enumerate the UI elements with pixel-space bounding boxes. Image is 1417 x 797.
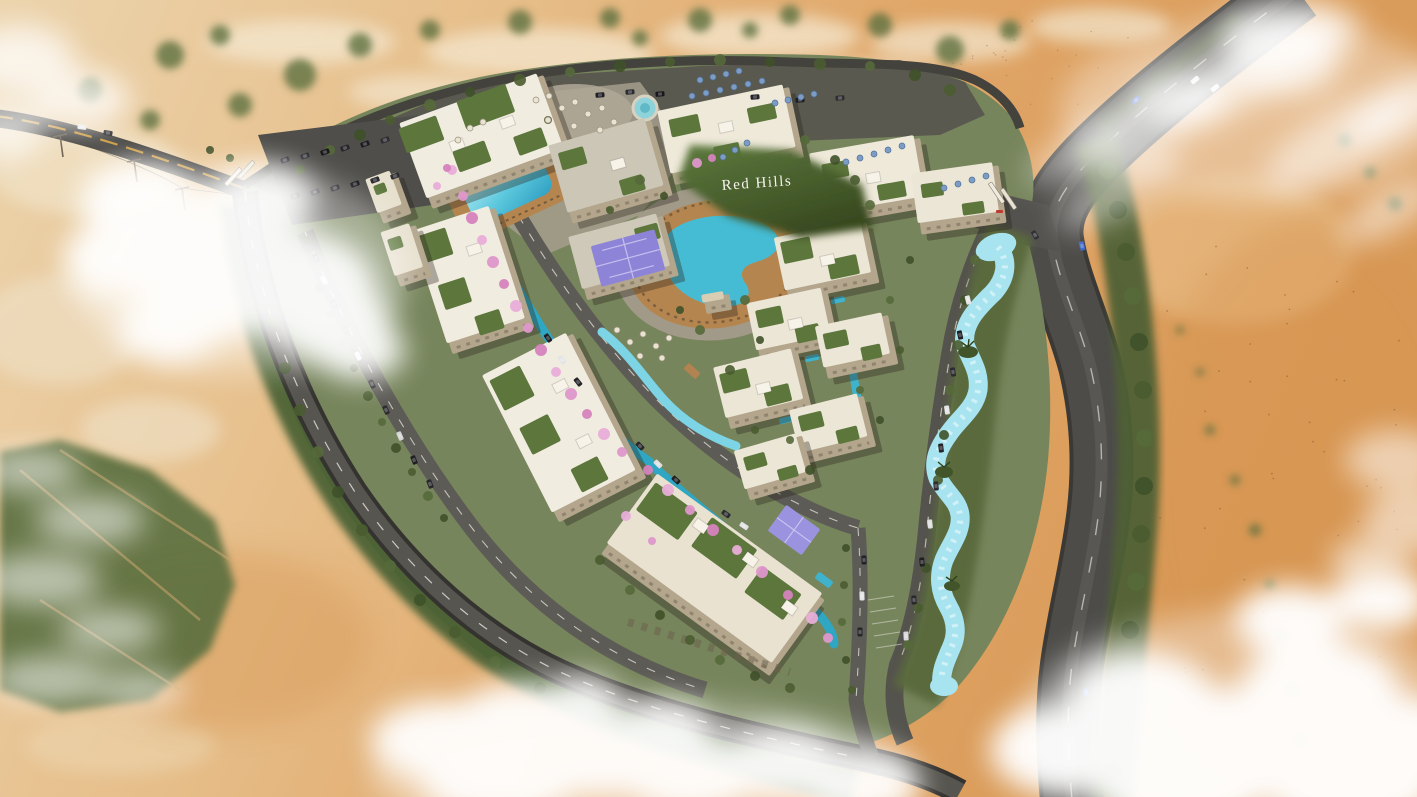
sand-speck bbox=[1366, 485, 1368, 487]
flower-tree bbox=[466, 212, 478, 224]
car bbox=[919, 557, 925, 566]
car-roof bbox=[838, 96, 842, 100]
tree bbox=[356, 524, 368, 536]
tree bbox=[714, 54, 726, 66]
sand-speck bbox=[1205, 273, 1207, 275]
building bbox=[911, 161, 1013, 242]
white-umbrella bbox=[533, 97, 539, 103]
tree bbox=[953, 340, 963, 350]
tree bbox=[865, 200, 875, 210]
car-roof bbox=[628, 90, 632, 94]
tree bbox=[625, 585, 635, 595]
tree bbox=[514, 74, 526, 86]
sand-speck bbox=[1003, 34, 1005, 36]
tree bbox=[1117, 243, 1135, 261]
tree bbox=[440, 514, 448, 522]
car-roof bbox=[598, 93, 602, 97]
blue-umbrella bbox=[969, 177, 975, 183]
sand-speck bbox=[1244, 579, 1246, 581]
tree bbox=[595, 555, 605, 565]
tree bbox=[695, 325, 705, 335]
sand-speck bbox=[995, 54, 997, 56]
sand-speck bbox=[993, 52, 995, 54]
flower-tree bbox=[756, 566, 768, 578]
sand-speck bbox=[1218, 370, 1220, 372]
tree bbox=[865, 61, 875, 71]
blue-umbrella bbox=[759, 78, 765, 84]
flower-tree bbox=[565, 388, 577, 400]
blue-umbrella bbox=[983, 173, 989, 179]
sand-speck bbox=[1166, 310, 1168, 312]
blue-umbrella bbox=[710, 74, 716, 80]
sand-speck bbox=[972, 92, 974, 94]
sand-speck bbox=[1286, 323, 1288, 325]
tree bbox=[1124, 287, 1142, 305]
tree bbox=[740, 295, 750, 305]
tree bbox=[606, 206, 614, 214]
scrub-patch bbox=[780, 5, 800, 25]
sand-speck bbox=[1249, 381, 1251, 383]
flower-tree bbox=[643, 465, 653, 475]
tree bbox=[385, 115, 395, 125]
car bbox=[927, 519, 933, 528]
scrub-patch bbox=[1196, 368, 1204, 376]
scrub-patch bbox=[420, 20, 440, 40]
flower-tree bbox=[443, 164, 451, 172]
sand-speck bbox=[1219, 508, 1221, 510]
white-umbrella bbox=[653, 343, 659, 349]
blue-umbrella bbox=[772, 100, 778, 106]
sand-speck bbox=[952, 62, 954, 64]
car bbox=[655, 91, 664, 97]
scrub-patch bbox=[1249, 524, 1261, 536]
scrub-patch bbox=[1176, 326, 1184, 334]
blue-umbrella bbox=[843, 159, 849, 165]
tree bbox=[614, 60, 626, 72]
scrub-patch bbox=[632, 30, 648, 46]
tree bbox=[1134, 381, 1152, 399]
roof-box bbox=[820, 254, 836, 267]
white-umbrella bbox=[611, 119, 617, 125]
car-roof bbox=[862, 558, 865, 562]
tree bbox=[414, 594, 426, 606]
tree bbox=[850, 175, 860, 185]
sand-speck bbox=[1020, 26, 1022, 28]
tree bbox=[665, 57, 675, 67]
car bbox=[903, 631, 908, 640]
scrub-patch bbox=[284, 59, 316, 91]
car bbox=[933, 481, 939, 490]
tree bbox=[332, 486, 344, 498]
blue-umbrella bbox=[941, 185, 947, 191]
tree bbox=[848, 686, 856, 694]
scrub-patch bbox=[210, 25, 230, 45]
white-umbrella bbox=[627, 339, 633, 345]
roof-box bbox=[866, 172, 882, 184]
tree bbox=[565, 67, 575, 77]
blue-umbrella bbox=[899, 143, 905, 149]
sand-speck bbox=[1358, 521, 1360, 523]
car-roof bbox=[945, 408, 949, 412]
sand-speck bbox=[972, 55, 974, 57]
flower-tree bbox=[617, 447, 627, 457]
tree bbox=[1136, 429, 1154, 447]
sand-speck bbox=[1215, 246, 1217, 248]
tree bbox=[814, 58, 826, 70]
white-umbrella bbox=[585, 111, 591, 117]
car bbox=[835, 95, 844, 101]
sand-speck bbox=[1271, 473, 1273, 475]
tree bbox=[423, 491, 433, 501]
sand-speck bbox=[1344, 380, 1346, 382]
tree bbox=[1130, 333, 1148, 351]
scrub-patch bbox=[600, 8, 620, 28]
tree bbox=[842, 656, 850, 664]
white-umbrella bbox=[571, 123, 577, 129]
tree bbox=[765, 57, 775, 67]
sand-speck bbox=[1395, 424, 1397, 426]
tree bbox=[685, 635, 695, 645]
tree bbox=[449, 626, 461, 638]
flower-tree bbox=[648, 537, 656, 545]
flower-tree bbox=[523, 323, 533, 333]
tree bbox=[424, 99, 436, 111]
sand-speck bbox=[961, 63, 963, 65]
sand-speck bbox=[1268, 414, 1270, 416]
car bbox=[861, 555, 866, 564]
flower-tree bbox=[598, 428, 610, 440]
scrub-patch bbox=[688, 8, 712, 32]
white-umbrella bbox=[640, 331, 646, 337]
flower-tree bbox=[510, 300, 522, 312]
sand-speck bbox=[1002, 56, 1004, 58]
car bbox=[859, 591, 864, 600]
sand-speck bbox=[1336, 379, 1338, 381]
tree bbox=[944, 84, 956, 96]
tree bbox=[676, 306, 684, 314]
sand-speck bbox=[972, 58, 974, 60]
flower-tree bbox=[806, 612, 818, 624]
sand-speck bbox=[1051, 78, 1053, 80]
tree bbox=[378, 418, 386, 426]
car-roof bbox=[912, 598, 915, 602]
flower-tree bbox=[662, 484, 674, 496]
scrub-patch bbox=[936, 36, 964, 64]
blue-umbrella bbox=[744, 140, 750, 146]
scrub-patch bbox=[508, 10, 532, 34]
car-roof bbox=[858, 630, 861, 634]
white-umbrella bbox=[614, 327, 620, 333]
tree bbox=[391, 443, 401, 453]
tree bbox=[970, 255, 980, 265]
resort-aerial-scene: Red Hills bbox=[0, 0, 1417, 797]
sand-speck bbox=[1006, 75, 1008, 77]
tree bbox=[945, 385, 955, 395]
tree bbox=[294, 404, 306, 416]
blue-umbrella bbox=[871, 151, 877, 157]
tree bbox=[312, 446, 324, 458]
sand-speck bbox=[1057, 50, 1059, 52]
tree bbox=[886, 296, 894, 304]
tree bbox=[909, 69, 921, 81]
tree bbox=[756, 336, 764, 344]
flower-tree bbox=[433, 182, 441, 190]
tree bbox=[354, 129, 366, 141]
tree bbox=[384, 560, 396, 572]
sand-speck bbox=[1005, 50, 1007, 52]
blue-umbrella bbox=[720, 154, 726, 160]
aerial-render-image: Red Hills bbox=[0, 0, 1417, 797]
tree bbox=[896, 346, 904, 354]
car-roof bbox=[904, 634, 907, 638]
blue-umbrella bbox=[885, 147, 891, 153]
white-umbrella bbox=[599, 105, 605, 111]
scrub-patch bbox=[1230, 475, 1240, 485]
tree bbox=[489, 656, 501, 668]
white-umbrella bbox=[480, 119, 486, 125]
white-umbrella bbox=[659, 355, 665, 361]
car-roof bbox=[928, 522, 932, 526]
sand-speck bbox=[1075, 54, 1077, 56]
white-umbrella bbox=[455, 137, 461, 143]
blue-umbrella bbox=[732, 147, 738, 153]
flower-tree bbox=[477, 235, 487, 245]
sand-speck bbox=[1323, 451, 1325, 453]
tree bbox=[1127, 573, 1145, 591]
flower-tree bbox=[685, 505, 695, 515]
sand-speck bbox=[1090, 31, 1092, 33]
blue-umbrella bbox=[798, 94, 804, 100]
blue-umbrella bbox=[703, 90, 709, 96]
sand-speck bbox=[1030, 104, 1032, 106]
tree bbox=[830, 155, 840, 165]
tree bbox=[785, 683, 795, 693]
car bbox=[857, 627, 862, 636]
flower-tree bbox=[487, 256, 499, 268]
tree bbox=[363, 391, 373, 401]
sand-speck bbox=[1312, 441, 1314, 443]
sand-speck bbox=[1289, 309, 1291, 311]
sand-speck bbox=[1337, 535, 1339, 537]
sand-speck bbox=[1031, 20, 1033, 22]
fountain-center bbox=[640, 103, 650, 113]
sand-speck bbox=[986, 45, 988, 47]
sand-speck bbox=[1014, 39, 1016, 41]
sand-speck bbox=[1159, 517, 1161, 519]
blue-umbrella bbox=[689, 93, 695, 99]
tree bbox=[206, 146, 214, 154]
tree bbox=[913, 603, 923, 613]
tree bbox=[715, 655, 725, 665]
white-umbrella bbox=[572, 99, 578, 105]
flower-tree bbox=[458, 191, 468, 201]
flower-tree bbox=[708, 154, 716, 162]
car-roof bbox=[860, 594, 863, 598]
tree bbox=[465, 87, 475, 97]
sand-speck bbox=[1394, 409, 1396, 411]
blue-umbrella bbox=[717, 87, 723, 93]
scrub-patch bbox=[868, 13, 892, 37]
white-umbrella bbox=[467, 125, 473, 131]
tree bbox=[751, 426, 759, 434]
sand-speck bbox=[1249, 343, 1251, 345]
white-umbrella bbox=[637, 353, 643, 359]
white-umbrella bbox=[546, 93, 552, 99]
car-roof bbox=[934, 484, 938, 488]
blue-umbrella bbox=[731, 84, 737, 90]
blue-umbrella bbox=[785, 97, 791, 103]
sand-speck bbox=[1204, 411, 1206, 413]
roof-box bbox=[788, 317, 804, 330]
blue-umbrella bbox=[811, 91, 817, 97]
tree bbox=[750, 671, 760, 681]
scrub-patch bbox=[140, 110, 160, 130]
tree bbox=[842, 544, 850, 552]
sand-speck bbox=[1284, 294, 1286, 296]
tree bbox=[906, 256, 914, 264]
blue-umbrella bbox=[745, 81, 751, 87]
blue-umbrella bbox=[955, 181, 961, 187]
scrub-patch bbox=[348, 33, 372, 57]
tree bbox=[725, 365, 735, 375]
flower-tree bbox=[535, 344, 547, 356]
tree bbox=[939, 430, 949, 440]
flower-tree bbox=[551, 367, 561, 377]
sand-speck bbox=[1309, 422, 1311, 424]
tree bbox=[1132, 525, 1150, 543]
flower-tree bbox=[783, 590, 793, 600]
white-umbrella bbox=[666, 335, 672, 341]
tree bbox=[635, 175, 645, 185]
flower-tree bbox=[621, 511, 631, 521]
car-roof bbox=[920, 560, 924, 564]
tree bbox=[838, 618, 846, 626]
tree bbox=[903, 640, 913, 650]
sand-speck bbox=[1336, 281, 1338, 283]
flower-tree bbox=[823, 633, 833, 643]
gate-red-accent bbox=[996, 210, 1003, 213]
scrub-patch bbox=[742, 22, 758, 38]
tree bbox=[226, 154, 234, 162]
tree bbox=[876, 416, 884, 424]
sand-speck bbox=[1353, 291, 1355, 293]
tree bbox=[840, 581, 848, 589]
tree bbox=[800, 135, 810, 145]
car-roof bbox=[939, 446, 943, 450]
white-umbrella bbox=[597, 127, 603, 133]
car-roof bbox=[753, 95, 757, 99]
flower-tree bbox=[582, 409, 592, 419]
car bbox=[750, 94, 759, 100]
tree bbox=[655, 610, 665, 620]
tree bbox=[856, 386, 864, 394]
scrub-patch bbox=[228, 93, 252, 117]
flower-tree bbox=[732, 545, 742, 555]
tree bbox=[660, 192, 668, 200]
sand-speck bbox=[1272, 478, 1274, 480]
roof-box bbox=[718, 121, 734, 134]
sand-speck bbox=[1286, 375, 1288, 377]
sand-speck bbox=[1068, 66, 1070, 68]
car bbox=[911, 595, 917, 604]
sand-speck bbox=[1204, 527, 1206, 529]
car bbox=[625, 89, 634, 95]
sand-speck bbox=[1127, 37, 1129, 39]
sand-speck bbox=[1005, 59, 1007, 61]
scrub-patch bbox=[1205, 425, 1215, 435]
river-end-pool bbox=[930, 676, 958, 696]
tree bbox=[786, 436, 794, 444]
tree bbox=[805, 465, 815, 475]
white-umbrella bbox=[545, 117, 551, 123]
tree bbox=[408, 468, 416, 476]
blue-umbrella bbox=[736, 68, 742, 74]
flower-tree bbox=[707, 524, 719, 536]
white-umbrella bbox=[559, 105, 565, 111]
scrub-patch bbox=[156, 41, 184, 69]
blue-umbrella bbox=[723, 71, 729, 77]
sand-speck bbox=[1398, 340, 1400, 342]
flower-tree bbox=[499, 279, 509, 289]
blue-umbrella bbox=[857, 155, 863, 161]
car-roof bbox=[658, 92, 662, 96]
scrub-patch bbox=[1000, 20, 1020, 40]
flower-tree bbox=[692, 158, 702, 168]
blue-umbrella bbox=[697, 77, 703, 83]
sand-speck bbox=[1246, 267, 1248, 269]
tree bbox=[1135, 477, 1153, 495]
car bbox=[595, 92, 604, 98]
